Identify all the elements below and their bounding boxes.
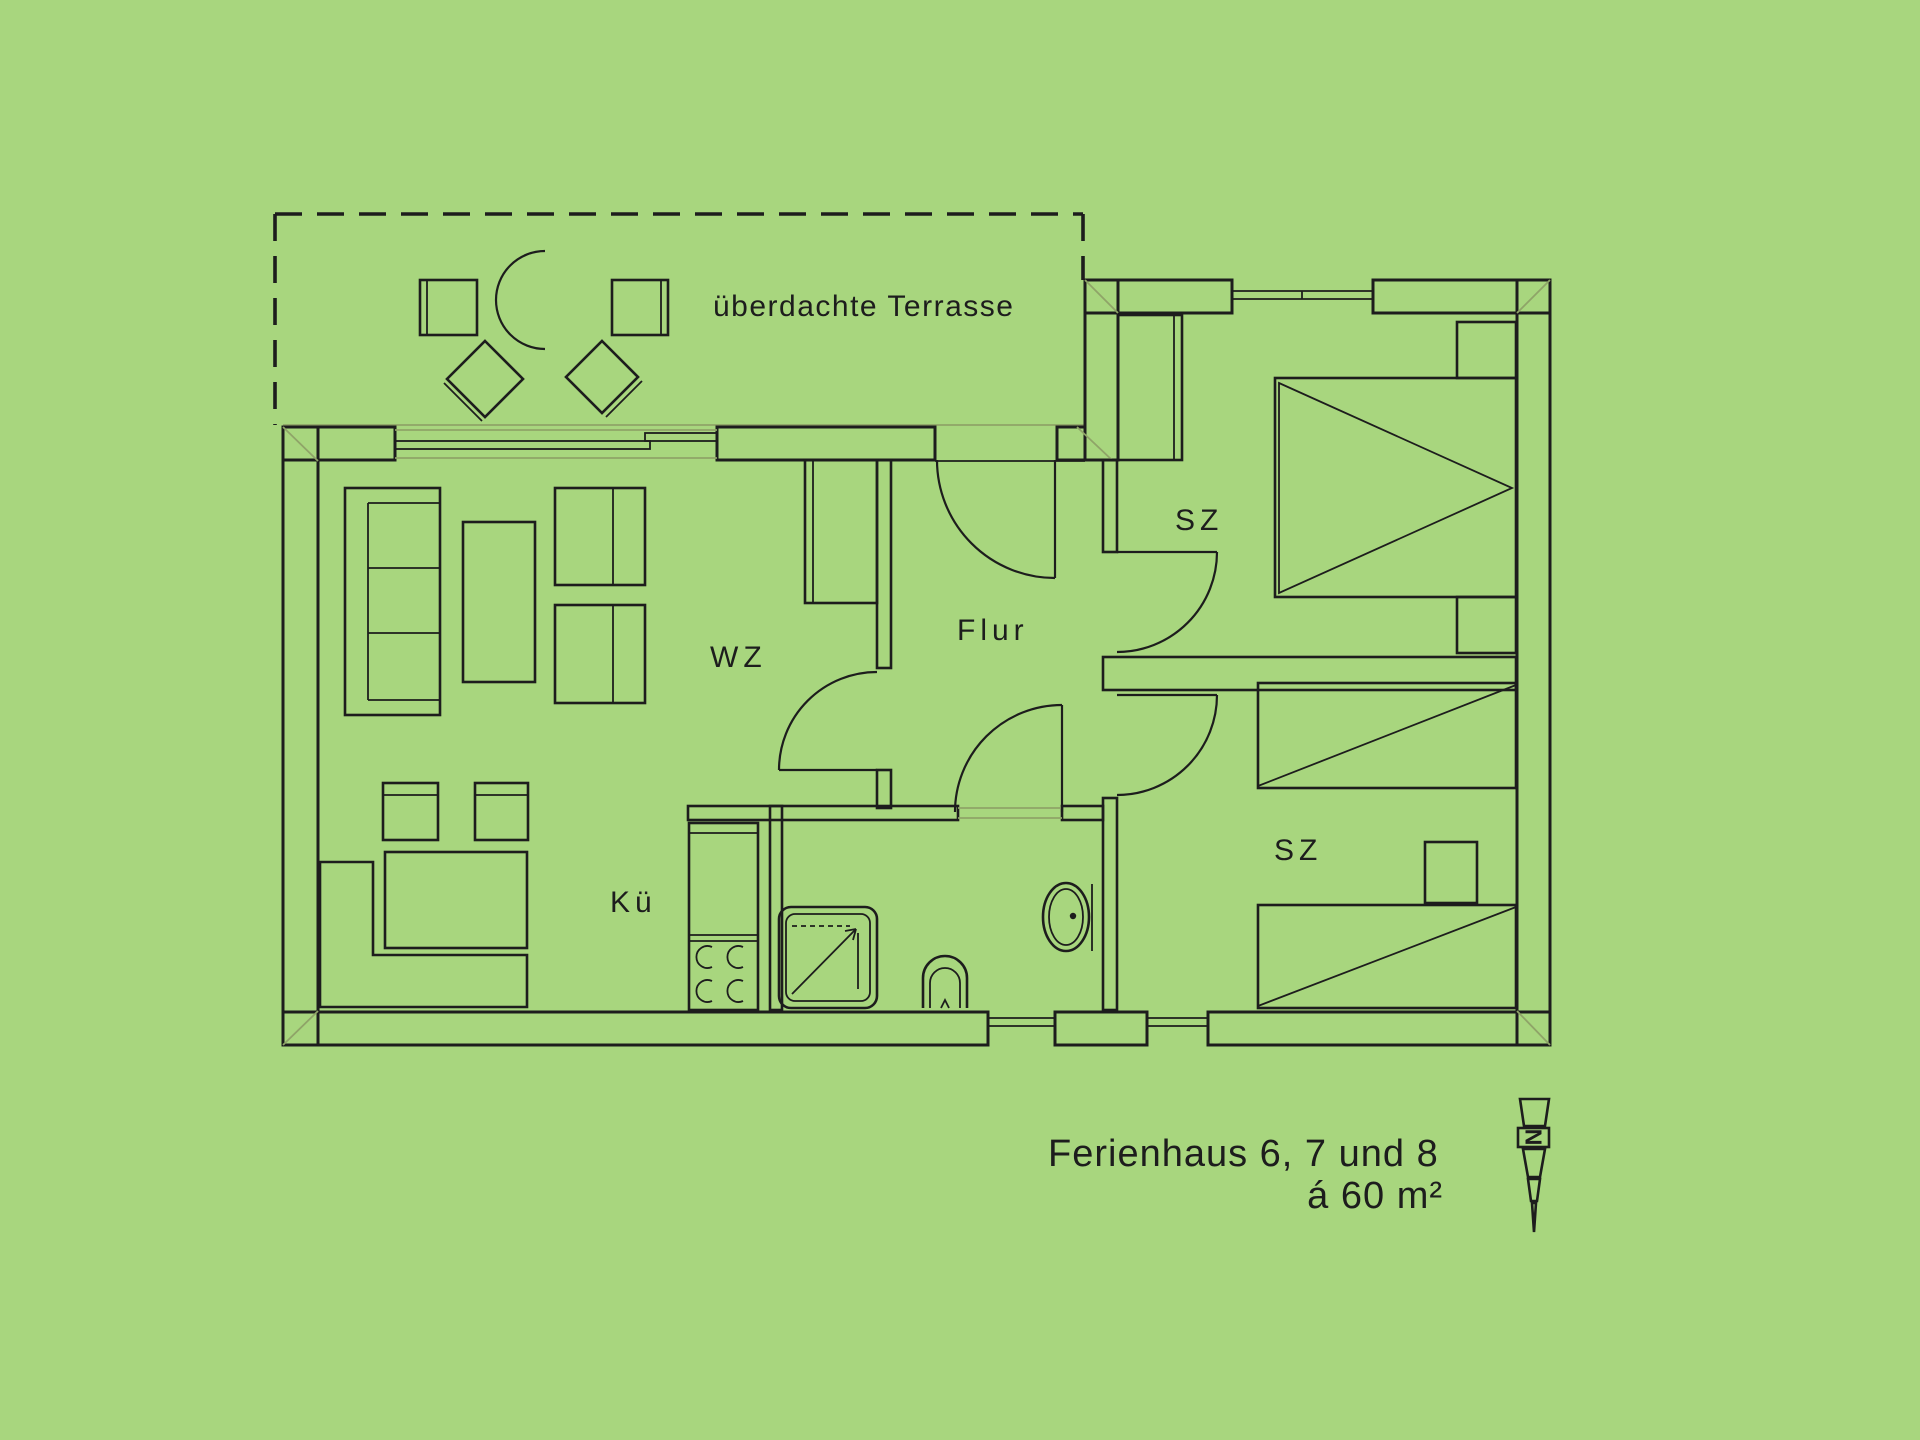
bedroom-top-wall-b bbox=[1373, 280, 1550, 313]
entrance-door bbox=[935, 460, 1085, 578]
nightstand-top bbox=[1457, 322, 1516, 378]
floor-plan-page: überdachte Terrasse bbox=[0, 0, 1920, 1440]
top-wall-stub bbox=[1057, 427, 1085, 460]
kitchen-dining: Kü bbox=[320, 783, 758, 1010]
dining-chair-right bbox=[475, 783, 528, 840]
stove-burner bbox=[727, 946, 743, 968]
bottom-wall-c bbox=[1208, 1012, 1550, 1045]
bottom-wall-b bbox=[1055, 1012, 1147, 1045]
armchair-bottom bbox=[555, 605, 645, 703]
wall-miters bbox=[283, 280, 1550, 1045]
armchair-top bbox=[555, 488, 645, 585]
floor-plan: überdachte Terrasse bbox=[0, 0, 1920, 1440]
outer-walls bbox=[283, 280, 1550, 1045]
dining-chair-left bbox=[383, 783, 438, 840]
room-label-living: WZ bbox=[710, 641, 767, 674]
bedroom-top-wall-a bbox=[1085, 280, 1232, 313]
room-label-kitchen: Kü bbox=[610, 886, 657, 919]
kitchen-unit bbox=[689, 823, 758, 1010]
room-label-bedroom-bottom: SZ bbox=[1274, 834, 1322, 867]
terrace: überdachte Terrasse bbox=[275, 214, 1083, 425]
terrace-sliding-window bbox=[395, 430, 717, 458]
living-room-door bbox=[779, 672, 877, 770]
shower bbox=[779, 907, 877, 1008]
toilet bbox=[923, 956, 967, 1008]
bath-north-wall-a bbox=[688, 806, 958, 820]
living-hall-wall-upper bbox=[877, 460, 891, 668]
living-hall-wall-lower bbox=[877, 770, 891, 808]
nightstand-bottom bbox=[1457, 597, 1516, 653]
north-letter: N bbox=[1521, 1129, 1547, 1146]
bedroom-bottom-window bbox=[1147, 1014, 1208, 1030]
bedroom-top-window bbox=[1232, 287, 1373, 303]
stove-burner bbox=[727, 980, 743, 1002]
hall-wardrobe bbox=[805, 460, 877, 603]
bedroom-top-wardrobe bbox=[1118, 315, 1182, 460]
living-room: WZ bbox=[345, 460, 877, 715]
terrace-table-left bbox=[420, 280, 477, 335]
hall-bedroom-wall-upper bbox=[1103, 460, 1117, 552]
bath-north-wall-b bbox=[1062, 806, 1103, 820]
corner-bench bbox=[320, 862, 527, 1007]
bath-door bbox=[955, 705, 1062, 818]
bedroom-top-door bbox=[1117, 552, 1217, 652]
bedroom-bottom-door bbox=[1117, 695, 1217, 795]
room-label-bedroom-top: SZ bbox=[1175, 504, 1223, 537]
terrace-table-right bbox=[612, 280, 668, 335]
washbasin bbox=[1043, 883, 1092, 951]
hall-bedroom-wall-lower bbox=[1103, 798, 1117, 1010]
top-wall-mid-block bbox=[717, 427, 935, 460]
bedroom-top: SZ bbox=[1118, 315, 1516, 653]
left-wall bbox=[283, 427, 318, 1045]
bottom-wall-a bbox=[283, 1012, 988, 1045]
sofa bbox=[345, 488, 440, 715]
terrace-chair-left bbox=[444, 341, 523, 421]
nightstand-between-beds bbox=[1425, 842, 1477, 903]
windows bbox=[395, 287, 1373, 1030]
caption: Ferienhaus 6, 7 und 8 á 60 m² bbox=[1048, 1133, 1443, 1217]
terrace-round-table-arc bbox=[496, 251, 545, 349]
caption-title: Ferienhaus 6, 7 und 8 bbox=[1048, 1133, 1439, 1175]
single-bed-lower bbox=[1258, 905, 1516, 1008]
stove-burner bbox=[696, 946, 712, 968]
dining-table bbox=[385, 852, 527, 948]
bedroom-bottom: SZ bbox=[1258, 683, 1516, 1008]
right-wall bbox=[1517, 280, 1550, 1045]
double-bed bbox=[1275, 378, 1516, 597]
terrace-label: überdachte Terrasse bbox=[713, 290, 1014, 323]
bedroom-divider-wall bbox=[1103, 657, 1516, 690]
stove-burner bbox=[696, 980, 712, 1002]
bathroom bbox=[779, 883, 1092, 1008]
caption-area: á 60 m² bbox=[1307, 1175, 1443, 1217]
coffee-table bbox=[463, 522, 535, 682]
bath-window bbox=[988, 1014, 1055, 1030]
single-bed-upper bbox=[1258, 683, 1516, 788]
terrace-chair-right bbox=[566, 341, 642, 417]
room-label-hall: Flur bbox=[957, 614, 1029, 647]
north-arrow: N bbox=[1518, 1099, 1549, 1232]
